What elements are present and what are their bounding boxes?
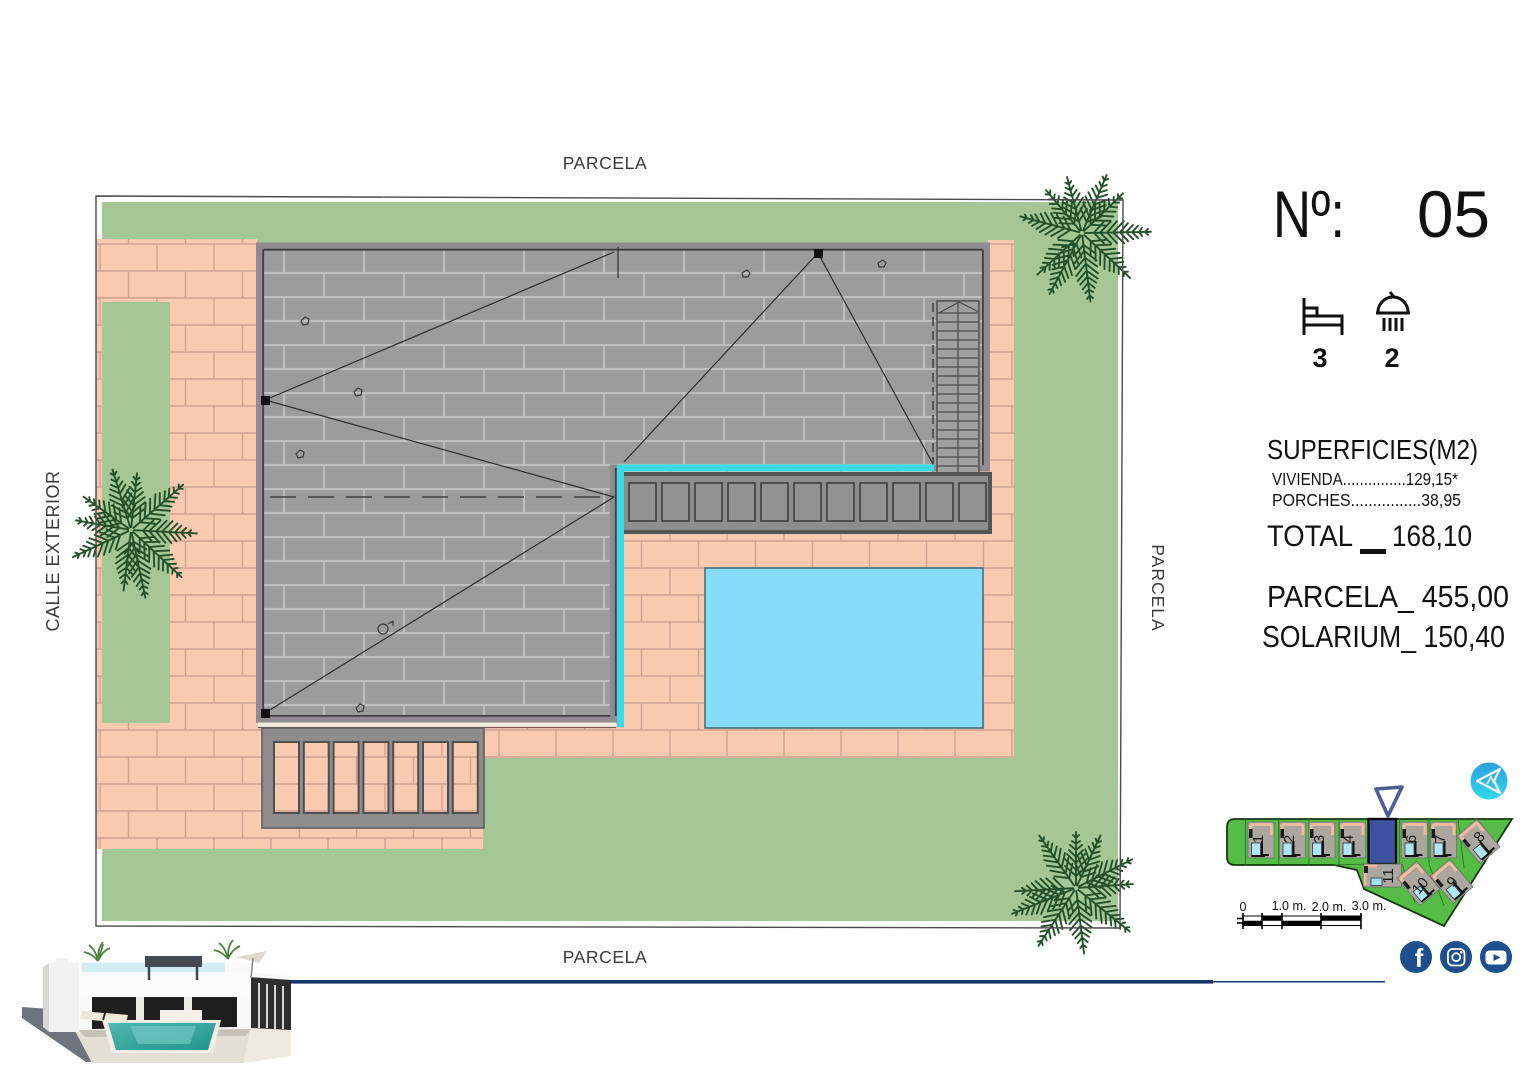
svg-text:VIVIENDA...............129,15*: VIVIENDA...............129,15* <box>1272 469 1458 489</box>
svg-text:f: f <box>1415 943 1424 973</box>
svg-text:6: 6 <box>1403 835 1420 843</box>
svg-text:168,10: 168,10 <box>1392 520 1472 553</box>
svg-text:7: 7 <box>1432 835 1449 843</box>
svg-text:CALLE EXTERIOR: CALLE EXTERIOR <box>43 470 63 631</box>
svg-text:2: 2 <box>1384 343 1399 373</box>
svg-text:1.0 m.: 1.0 m. <box>1272 899 1307 913</box>
svg-text:3.0 m.: 3.0 m. <box>1352 899 1387 913</box>
svg-text:SUPERFICIES(M2): SUPERFICIES(M2) <box>1267 434 1478 465</box>
svg-text:3: 3 <box>1312 343 1327 373</box>
svg-text:PORCHES................38,95: PORCHES................38,95 <box>1272 490 1461 510</box>
svg-text:05: 05 <box>1417 177 1490 251</box>
svg-text:PARCELA: PARCELA <box>563 947 648 967</box>
svg-text:PARCELA: PARCELA <box>563 153 648 173</box>
svg-text:11: 11 <box>1380 868 1397 884</box>
svg-text:2.0 m.: 2.0 m. <box>1312 900 1347 914</box>
svg-text:TOTAL: TOTAL <box>1267 520 1353 553</box>
svg-text:Nº:: Nº: <box>1273 177 1345 251</box>
svg-text:PARCELA: PARCELA <box>1148 544 1168 631</box>
svg-text:2: 2 <box>1281 835 1298 843</box>
svg-text:0: 0 <box>1240 900 1247 914</box>
svg-text:4: 4 <box>1340 835 1357 843</box>
svg-text:SOLARIUM_ 150,40: SOLARIUM_ 150,40 <box>1262 619 1505 654</box>
svg-text:3: 3 <box>1311 835 1328 843</box>
svg-text:PARCELA_ 455,00: PARCELA_ 455,00 <box>1267 579 1509 614</box>
svg-text:1: 1 <box>1250 835 1267 843</box>
